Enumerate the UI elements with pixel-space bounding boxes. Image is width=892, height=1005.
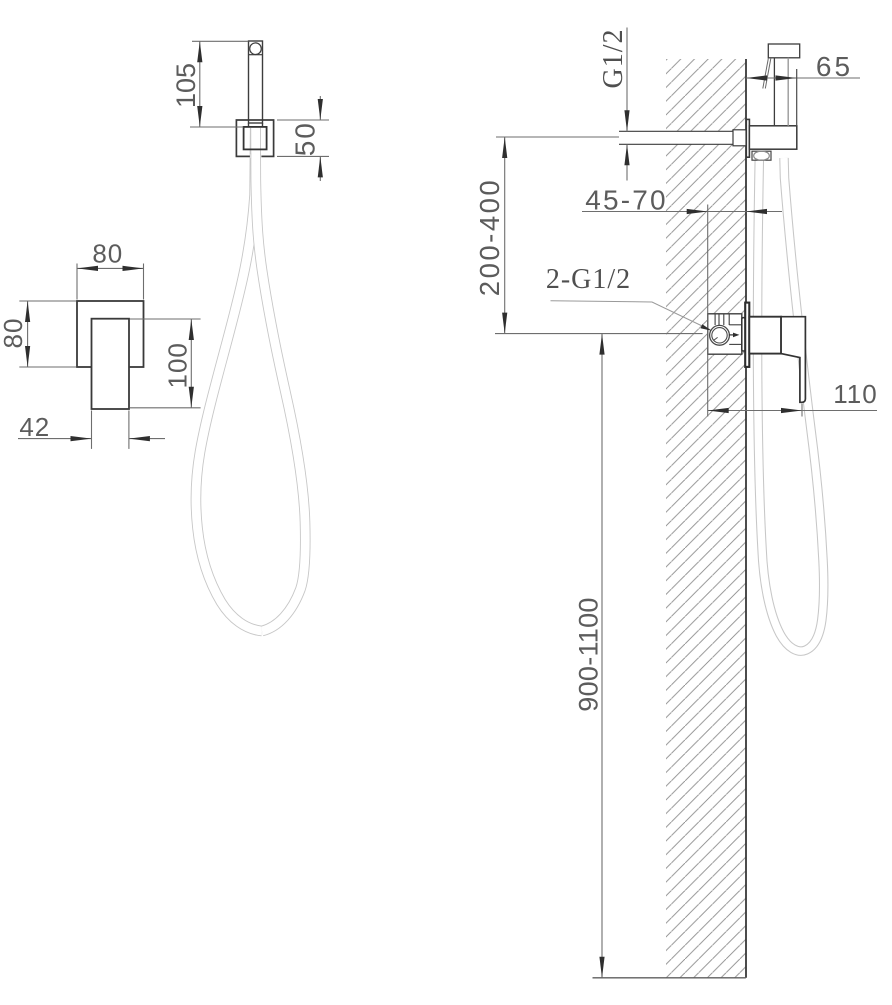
svg-text:80: 80	[0, 318, 28, 349]
svg-text:105: 105	[171, 63, 201, 108]
svg-text:42: 42	[19, 412, 50, 442]
svg-text:200-400: 200-400	[474, 178, 505, 296]
svg-text:G1/2: G1/2	[598, 29, 629, 89]
svg-text:900-1100: 900-1100	[574, 597, 604, 712]
svg-text:65: 65	[816, 51, 853, 82]
svg-text:45-70: 45-70	[585, 185, 668, 216]
svg-text:80: 80	[92, 239, 123, 269]
svg-text:110: 110	[833, 379, 877, 409]
svg-text:100: 100	[162, 342, 192, 388]
svg-text:2-G1/2: 2-G1/2	[546, 264, 631, 295]
svg-text:50: 50	[290, 121, 321, 156]
